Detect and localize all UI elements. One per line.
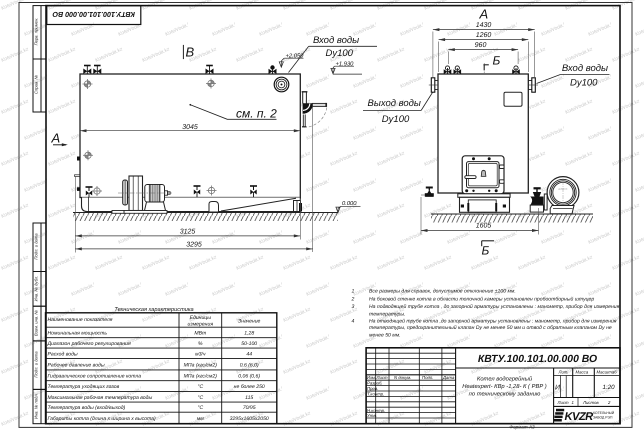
svg-text:3045: 3045 (182, 124, 198, 131)
svg-text:1:20: 1:20 (602, 384, 615, 391)
svg-text:не более 250: не более 250 (234, 384, 265, 390)
svg-text:Лит.: Лит. (558, 370, 569, 375)
svg-text:МПа (кгс/см2): МПа (кгс/см2) (184, 362, 218, 368)
svg-text:см. п. 2: см. п. 2 (236, 106, 277, 120)
svg-text:Выход воды: Выход воды (368, 98, 421, 109)
svg-text:А: А (479, 6, 489, 21)
svg-text:%: % (198, 341, 203, 347)
svg-text:Пров.: Пров. (367, 386, 378, 391)
svg-text:Разраб.: Разраб. (367, 381, 383, 386)
svg-text:Перв. примен.: Перв. примен. (34, 18, 39, 46)
svg-text:дымосос: дымосос (559, 188, 569, 191)
svg-text:44: 44 (246, 351, 252, 357)
svg-text:115: 115 (245, 395, 253, 401)
svg-text:Дата: Дата (442, 375, 455, 380)
svg-text:Лист: Лист (376, 375, 388, 380)
svg-text:Температура уходящих газов: Температура уходящих газов (48, 384, 120, 390)
svg-text:измерения: измерения (188, 321, 214, 327)
svg-text:Подп. и дата: Подп. и дата (34, 233, 39, 260)
svg-text:Максимальная рабочая температу: Максимальная рабочая температура воды (48, 395, 153, 401)
svg-text:Диапазон рабочего регулировани: Диапазон рабочего регулирования (47, 341, 131, 347)
svg-text:960: 960 (475, 42, 487, 49)
svg-text:Наименование показателя: Наименование показателя (48, 317, 113, 323)
svg-text:Б: Б (493, 53, 501, 67)
svg-text:°С: °С (197, 384, 203, 390)
svg-text:Масштаб: Масштаб (597, 370, 618, 375)
svg-text:На отводящей трубе котла ,до з: На отводящей трубе котла ,до запорной ар… (369, 319, 617, 325)
svg-text:Масса: Масса (576, 370, 589, 375)
svg-text:Н.контр.: Н.контр. (367, 408, 385, 413)
svg-text:Рабочее давление воды: Рабочее давление воды (48, 362, 105, 368)
svg-text:Подп. и дата: Подп. и дата (34, 351, 39, 378)
svg-text:Гидравлическое сопротивление к: Гидравлическое сопротивление котла (48, 373, 142, 379)
svg-text:Расход воды: Расход воды (48, 351, 78, 357)
svg-text:ЗАВОД РЭП: ЗАВОД РЭП (593, 416, 613, 420)
svg-text:3: 3 (352, 304, 355, 310)
svg-text:КОТЕЛЬНЫЙ: КОТЕЛЬНЫЙ (593, 410, 615, 415)
svg-text:3295: 3295 (186, 242, 202, 249)
svg-text:0,06 (0,6): 0,06 (0,6) (238, 373, 260, 379)
svg-text:КВТУ.100.101.00.000 ВО: КВТУ.100.101.00.000 ВО (478, 354, 597, 365)
svg-text:менее 50 мм.: менее 50 мм. (369, 332, 401, 338)
svg-text:4: 4 (352, 319, 355, 325)
svg-text:м3/ч: м3/ч (195, 351, 206, 357)
svg-text:Температура воды (вход/выход): Температура воды (вход/выход) (48, 405, 126, 411)
svg-text:N докум.: N докум. (394, 375, 411, 380)
svg-text:Утв.: Утв. (367, 413, 377, 418)
svg-text:°С: °С (197, 395, 203, 401)
svg-text:МВт: МВт (194, 331, 206, 337)
svg-text:А: А (51, 131, 61, 146)
svg-text:Инв. № подл.: Инв. № подл. (34, 393, 39, 419)
svg-text:по техническому заданию: по техническому заданию (469, 391, 541, 398)
svg-text:На подводящей трубе котла ,: На подводящей трубе котла , до запорной … (369, 304, 620, 310)
svg-text:Инв. № дубл.: Инв. № дубл. (34, 276, 39, 302)
svg-text:Подп.: Подп. (422, 375, 433, 380)
svg-text:Лист: Лист (557, 400, 569, 405)
svg-text:Котел водогрейный: Котел водогрейный (477, 376, 533, 383)
svg-text:температуры, предохранительный: температуры, предохранительный клапан Dу… (369, 325, 612, 331)
svg-text:Heatexpert- КВр -1,28- К ( РВР: Heatexpert- КВр -1,28- К ( РВР ) (462, 383, 547, 390)
svg-text:Dу100: Dу100 (326, 48, 354, 59)
svg-text:2: 2 (351, 297, 355, 303)
svg-text:Формат А3: Формат А3 (509, 425, 535, 430)
svg-text:1260: 1260 (476, 32, 492, 39)
svg-text:1430: 1430 (476, 22, 492, 29)
svg-text:Взам. инв. №: Взам. инв. № (34, 310, 39, 336)
svg-text:Все размеры для справок, допус: Все размеры для справок, допустимое откл… (369, 288, 516, 294)
svg-text:Dу100: Dу100 (382, 114, 410, 125)
svg-text:50-100: 50-100 (241, 341, 257, 347)
svg-text:3295х1605х2050: 3295х1605х2050 (230, 416, 269, 422)
svg-text:1605: 1605 (476, 222, 492, 229)
svg-text:Вход воды: Вход воды (562, 63, 608, 74)
svg-text:мм: мм (197, 416, 204, 422)
svg-text:КВТУ.100.101.00.000 ВО: КВТУ.100.101.00.000 ВО (52, 10, 135, 19)
svg-text:Листов: Листов (582, 400, 599, 405)
svg-text:Вход воды: Вход воды (313, 35, 359, 46)
svg-text:МПа (кгс/см2): МПа (кгс/см2) (184, 373, 218, 379)
svg-text:В: В (186, 45, 195, 60)
svg-text:70/95: 70/95 (243, 405, 256, 411)
svg-text:Б: Б (482, 244, 490, 258)
svg-text:Dу100: Dу100 (570, 78, 598, 89)
svg-text:Т.контр.: Т.контр. (367, 391, 384, 396)
svg-text:Справ. №: Справ. № (34, 75, 39, 94)
svg-text:На боковой стенке котла в обла: На боковой стенке котла в области топочн… (369, 297, 594, 303)
svg-text:3125: 3125 (180, 229, 196, 236)
svg-text:Габариты котла (длина х ширина: Габариты котла (длина х ширина х высота) (48, 416, 156, 422)
svg-text:1: 1 (352, 288, 355, 294)
svg-text:°С: °С (197, 405, 203, 411)
svg-text:0,6 (6,0): 0,6 (6,0) (240, 362, 259, 368)
svg-text:Единицы: Единицы (190, 315, 212, 321)
svg-text:1,28: 1,28 (244, 331, 254, 337)
svg-text:KVZR: KVZR (565, 411, 594, 423)
svg-text:Изм.: Изм. (367, 375, 376, 380)
svg-text:температуры.: температуры. (369, 311, 406, 317)
svg-text:Номинальная мощность: Номинальная мощность (48, 331, 108, 337)
svg-text:Значение: Значение (238, 318, 261, 324)
